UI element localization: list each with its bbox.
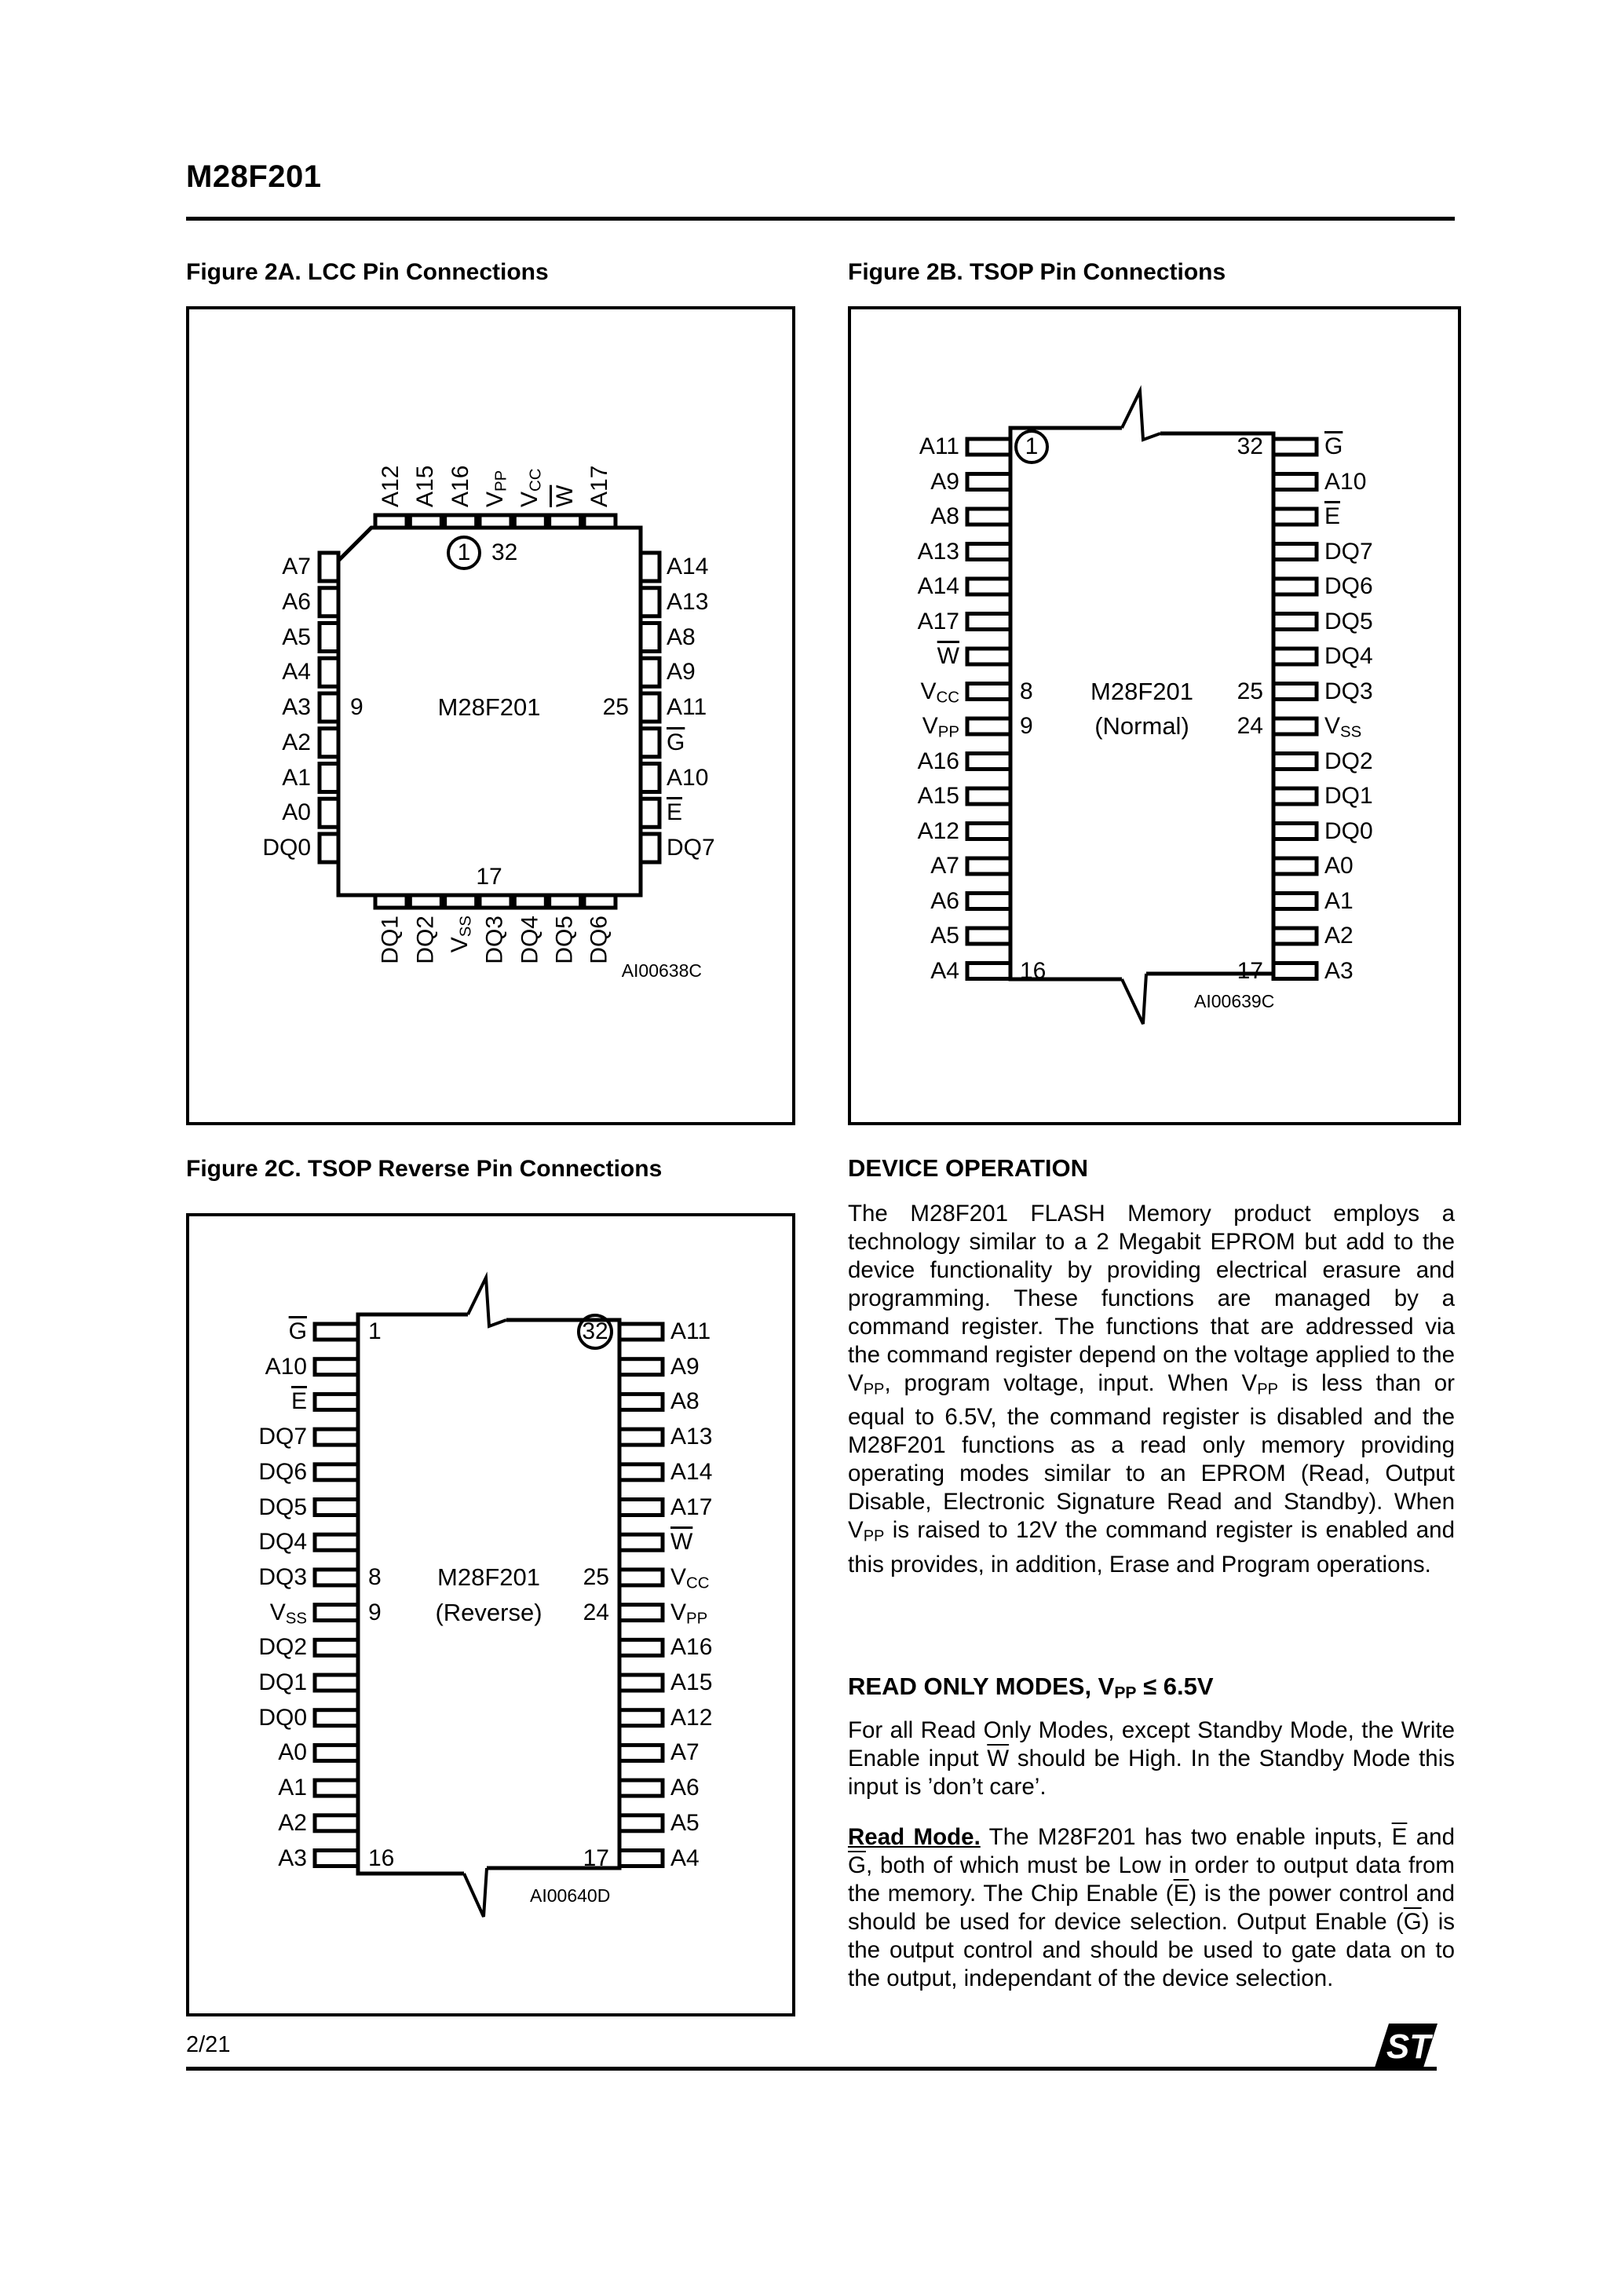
text-segment: G	[1404, 1909, 1422, 1935]
header-rule	[186, 217, 1455, 221]
pin-stub	[619, 1570, 663, 1585]
text-segment: , program voltage, input. When V	[884, 1370, 1257, 1396]
pin-label-left: DQ5	[189, 1494, 307, 1521]
pin-label-left: VPP	[851, 713, 959, 745]
pin-stub	[1273, 754, 1317, 770]
pin-label-right: DQ6	[1324, 573, 1373, 600]
pin-stub	[320, 799, 338, 827]
pin-stub	[641, 729, 659, 757]
pin-number-16: 16	[1020, 958, 1046, 985]
pin-stub	[1273, 474, 1317, 490]
pin-stub	[619, 1534, 663, 1550]
pin-stub	[641, 588, 659, 616]
pin-stub	[967, 509, 1010, 525]
pin-label-right: A14	[667, 554, 708, 580]
pin-stub	[619, 1324, 663, 1340]
pin-label-left: A9	[851, 469, 959, 495]
pin-label-right: A13	[670, 1424, 712, 1450]
pin-label-right: A2	[1324, 923, 1353, 949]
page-number: 2/21	[186, 2032, 230, 2058]
pin-label-right: DQ1	[1324, 783, 1373, 810]
page-title: M28F201	[186, 159, 321, 195]
pin-label-left: A5	[189, 624, 311, 651]
pin-stub	[315, 1640, 358, 1655]
circled-pin-number: 1	[440, 539, 488, 566]
pin-stub	[967, 788, 1010, 804]
figure-2a-box: A7A14A6A13A5A8A4A9A3A11A2GA1A10A0EDQ0DQ7…	[186, 306, 795, 1125]
pin-label-right: DQ0	[1324, 818, 1373, 845]
pin-stub	[619, 1394, 663, 1409]
pin-stub	[619, 1429, 663, 1445]
pin-stub	[641, 553, 659, 581]
text-segment: PP	[864, 1380, 885, 1398]
pin-number-17: 17	[531, 1845, 609, 1872]
pin-label-left: A13	[851, 539, 959, 565]
pin-label-right: DQ7	[667, 835, 715, 861]
text-segment: The M28F201 FLASH Memory product employs…	[848, 1201, 1455, 1396]
pin-stub	[619, 1710, 663, 1726]
pin-label-top: A12	[378, 466, 404, 507]
pin-label-left: DQ4	[189, 1529, 307, 1556]
pin-stub	[619, 1500, 663, 1515]
pin-label-bottom: DQ1	[378, 916, 404, 964]
pin-stub	[967, 963, 1010, 979]
footer-rule	[186, 2067, 1437, 2071]
pin-number-9: 9	[350, 694, 363, 721]
chip-variant: (Reverse)	[371, 1600, 607, 1626]
pin-label-left: A10	[189, 1354, 307, 1380]
pin-label-right: A11	[670, 1318, 711, 1345]
pin-label-right: A5	[670, 1810, 700, 1837]
pin-label-left: DQ0	[189, 835, 311, 861]
pin-stub	[641, 799, 659, 827]
break-symbol-bottom	[464, 1868, 487, 1917]
text-segment: E	[1392, 1824, 1408, 1850]
pin-stub	[619, 1675, 663, 1691]
pin-stub	[315, 1464, 358, 1480]
pin-number-16: 16	[368, 1845, 394, 1872]
pin-stub	[967, 439, 1010, 455]
pin-label-left: A1	[189, 1775, 307, 1801]
figure-2b-caption: Figure 2B. TSOP Pin Connections	[848, 259, 1226, 286]
pin-label-left: A11	[851, 433, 959, 460]
pin-stub	[315, 1745, 358, 1760]
pin-stub	[315, 1851, 358, 1866]
tsop-chip-outline-right	[487, 1320, 619, 1868]
pin-label-left: W	[851, 643, 959, 670]
pin-stub	[315, 1500, 358, 1515]
read-mode-paragraph: Read Mode. The M28F201 has two enable in…	[848, 1823, 1455, 1993]
pin-stub	[1273, 824, 1317, 839]
pin-label-right: A3	[1324, 958, 1353, 985]
tsop-chip-outline-left	[358, 1314, 468, 1874]
pin-label-right: VPP	[670, 1600, 707, 1632]
pin-stub	[967, 894, 1010, 909]
pin-stub	[641, 623, 659, 652]
pin-stub	[1273, 544, 1317, 560]
pin-stub	[320, 729, 338, 757]
circled-pin-number: 32	[572, 1318, 619, 1345]
pin-stub	[320, 553, 338, 581]
pin-stub	[550, 895, 581, 908]
pin-label-top: A17	[586, 466, 613, 507]
pin-label-right: A13	[667, 589, 708, 616]
pin-stub	[1273, 614, 1317, 630]
pin-label-left: DQ3	[189, 1564, 307, 1591]
pin-label-right: A11	[667, 694, 707, 721]
pin-label-left: VCC	[851, 678, 959, 711]
pin-stub	[967, 824, 1010, 839]
pin-label-right: G	[1324, 433, 1343, 460]
pin-label-left: A8	[851, 503, 959, 530]
pin-stub	[641, 834, 659, 862]
pin-label-top: VPP	[482, 470, 509, 507]
pin-stub	[619, 1851, 663, 1866]
read-only-modes-heading: READ ONLY MODES, VPP ≤ 6.5V	[848, 1673, 1214, 1703]
pin-stub	[315, 1394, 358, 1409]
pin-stub	[967, 474, 1010, 490]
pin-stub	[410, 515, 441, 528]
figure-2c-box: GA11A10A9EA8DQ7A13DQ6A14DQ5A17DQ4WDQ3VCC…	[186, 1213, 795, 2016]
pin-label-left: A7	[189, 554, 311, 580]
pin-label-right: A8	[667, 624, 696, 651]
pin-stub	[315, 1780, 358, 1796]
pin-label-left: DQ1	[189, 1669, 307, 1696]
break-symbol-bottom	[1122, 974, 1146, 1024]
pin-label-right: A1	[1324, 888, 1353, 915]
pin-label-left: A3	[189, 1845, 307, 1872]
pin-label-right: A7	[670, 1739, 700, 1766]
text-segment: W	[987, 1746, 1009, 1771]
chip-name: M28F201	[371, 1564, 607, 1591]
text-segment: is raised to 12V the command register is…	[848, 1517, 1455, 1577]
pin-label-right: A0	[1324, 853, 1353, 879]
pin-stub	[619, 1780, 663, 1796]
text-segment: PP	[864, 1528, 885, 1545]
figure-2a-caption: Figure 2A. LCC Pin Connections	[186, 259, 549, 286]
text-segment: G	[848, 1852, 866, 1878]
pin-label-right: A10	[667, 765, 708, 792]
pin-stub	[1273, 579, 1317, 594]
pin-stub	[967, 579, 1010, 594]
pin-label-left: DQ7	[189, 1424, 307, 1450]
pin-stub	[315, 1429, 358, 1445]
pin-label-left: A6	[189, 589, 311, 616]
pin-label-right: G	[667, 729, 685, 756]
pin-stub	[480, 895, 511, 908]
pin-stub	[315, 1815, 358, 1831]
text-segment: E	[1174, 1881, 1189, 1907]
pin-stub	[315, 1324, 358, 1340]
pin-stub	[315, 1359, 358, 1375]
pin-stub	[1273, 649, 1317, 664]
pin-label-right: W	[670, 1529, 692, 1556]
pin-stub	[514, 895, 546, 908]
pin-stub	[480, 515, 511, 528]
pin-label-right: E	[667, 799, 682, 826]
pin-label-right: A4	[670, 1845, 700, 1872]
pin-stub	[641, 693, 659, 722]
pin-label-right: E	[1324, 503, 1340, 530]
pin-stub	[1273, 718, 1317, 734]
device-operation-heading: DEVICE OPERATION	[848, 1154, 1088, 1183]
pin-label-left: DQ0	[189, 1705, 307, 1731]
pin-label-left: A4	[189, 659, 311, 686]
pin-stub	[619, 1359, 663, 1375]
text-segment: PP	[1257, 1380, 1278, 1398]
pin-label-right: A8	[670, 1388, 700, 1415]
pin-stub	[619, 1605, 663, 1621]
pin-stub	[315, 1675, 358, 1691]
pin-label-right: DQ4	[1324, 643, 1373, 670]
pin-label-right: A16	[670, 1634, 712, 1661]
pin-label-bottom: VSS	[448, 916, 474, 952]
pin-stub	[967, 858, 1010, 874]
pin-label-left: A6	[851, 888, 959, 915]
pin-stub	[410, 895, 441, 908]
text-segment: ≤ 6.5V	[1136, 1673, 1213, 1700]
pin-stub	[1273, 509, 1317, 525]
pin-label-right: A12	[670, 1705, 712, 1731]
chip-name: M28F201	[1025, 678, 1260, 705]
pin-number-32: 32	[491, 539, 517, 566]
pin-stub	[320, 658, 338, 686]
figure-reference-code: AI00639C	[1194, 991, 1274, 1011]
text-segment: PP	[1114, 1684, 1136, 1702]
pin-stub	[619, 1464, 663, 1480]
break-symbol-top	[1122, 391, 1160, 440]
pin-label-left: DQ6	[189, 1459, 307, 1486]
text-segment: The M28F201 has two enable inputs,	[981, 1824, 1392, 1850]
pin-label-right: A15	[670, 1669, 712, 1696]
pin-stub	[445, 515, 477, 528]
standby-paragraph: For all Read Only Modes, except Standby …	[848, 1717, 1455, 1801]
pin-stub	[315, 1534, 358, 1550]
pin-label-left: A4	[851, 958, 959, 985]
pin-stub	[1273, 788, 1317, 804]
pin-stub	[320, 834, 338, 862]
pin-label-bottom: DQ6	[586, 916, 613, 964]
break-symbol-top	[468, 1278, 506, 1326]
pin-stub	[967, 684, 1010, 700]
pin-label-left: A5	[851, 923, 959, 949]
pin-stub	[1273, 894, 1317, 909]
pin-number-1: 1	[368, 1318, 382, 1345]
pin-label-left: A2	[189, 1810, 307, 1837]
device-operation-paragraph: The M28F201 FLASH Memory product employs…	[848, 1200, 1455, 1579]
text-segment: and	[1407, 1824, 1455, 1850]
pin-label-left: E	[189, 1388, 307, 1415]
pin-label-left: G	[189, 1318, 307, 1345]
pin-label-left: A0	[189, 799, 311, 826]
figure-2c-caption: Figure 2C. TSOP Reverse Pin Connections	[186, 1156, 662, 1183]
pin-stub	[1273, 439, 1317, 455]
pin-label-top: VCC	[517, 469, 543, 507]
pin-label-left: A17	[851, 609, 959, 635]
pin-stub	[375, 515, 407, 528]
pin-stub	[320, 764, 338, 792]
pin-label-left: A3	[189, 694, 311, 721]
pin-stub	[967, 928, 1010, 944]
pin-label-bottom: DQ5	[552, 916, 579, 964]
pin-stub	[320, 588, 338, 616]
pin-label-left: A0	[189, 1739, 307, 1766]
pin-stub	[550, 515, 581, 528]
pin-stub	[967, 718, 1010, 734]
pin-label-bottom: DQ3	[482, 916, 509, 964]
pin-label-right: A9	[667, 659, 696, 686]
pin-stub	[619, 1745, 663, 1760]
pin-label-right: VSS	[1324, 713, 1361, 745]
pin-stub	[967, 614, 1010, 630]
text-segment: Read Mode.	[848, 1824, 981, 1850]
pin-stub	[315, 1710, 358, 1726]
figure-reference-code: AI00638C	[545, 960, 702, 981]
pin-stub	[514, 515, 546, 528]
pin-stub	[584, 895, 616, 908]
pin-stub	[584, 515, 616, 528]
pin-label-left: DQ2	[189, 1634, 307, 1661]
pin-number-17: 17	[1185, 958, 1263, 985]
pin-label-left: A16	[851, 748, 959, 775]
pin-stub	[320, 693, 338, 722]
pin-stub	[445, 895, 477, 908]
pin-stub	[619, 1640, 663, 1655]
pin-label-left: A7	[851, 853, 959, 879]
pin-label-right: A10	[1324, 469, 1366, 495]
pin-label-right: DQ5	[1324, 609, 1373, 635]
pin-stub	[320, 623, 338, 652]
pin-label-right: DQ2	[1324, 748, 1373, 775]
circled-pin-number: 1	[1008, 433, 1055, 460]
pin-label-right: VCC	[670, 1564, 709, 1596]
pin-stub	[641, 764, 659, 792]
figure-reference-code: AI00640D	[530, 1885, 610, 1906]
pin-label-left: A15	[851, 783, 959, 810]
pin-stub	[967, 649, 1010, 664]
pin-label-right: A17	[670, 1494, 712, 1521]
pin-stub	[1273, 928, 1317, 944]
text-segment: READ ONLY MODES, V	[848, 1673, 1114, 1700]
pin-label-left: A12	[851, 818, 959, 845]
pin-label-left: A14	[851, 573, 959, 600]
svg-text:ST: ST	[1386, 2027, 1433, 2066]
pin-label-right: DQ7	[1324, 539, 1373, 565]
pin-label-top: W	[552, 485, 579, 507]
pin-label-right: A14	[670, 1459, 712, 1486]
pin-stub	[967, 544, 1010, 560]
pin-label-right: DQ3	[1324, 678, 1373, 705]
pin-stub	[1273, 684, 1317, 700]
pin-stub	[315, 1570, 358, 1585]
chip-variant: (Normal)	[1025, 713, 1260, 740]
pin-stub	[641, 658, 659, 686]
pin-stub	[315, 1605, 358, 1621]
pin-label-top: A16	[448, 466, 474, 507]
chip-name: M28F201	[371, 694, 607, 721]
figure-2b-box: A11GA9A10A8EA13DQ7A14DQ6A17DQ5WDQ4VCCDQ3…	[848, 306, 1461, 1125]
pin-label-left: A2	[189, 729, 311, 756]
pin-stub	[1273, 963, 1317, 979]
pin-stub	[1273, 858, 1317, 874]
datasheet-page: M28F201 Figure 2A. LCC Pin Connections F…	[0, 0, 1622, 2296]
pin-number-32: 32	[1185, 433, 1263, 460]
pin-label-bottom: DQ4	[517, 916, 543, 964]
pin-stub	[375, 895, 407, 908]
pin-stub	[967, 754, 1010, 770]
pin-number-17: 17	[450, 864, 528, 890]
st-logo: ST	[1374, 2023, 1438, 2068]
pin-label-left: VSS	[189, 1600, 307, 1632]
pin-stub	[619, 1815, 663, 1831]
pin-label-bottom: DQ2	[412, 916, 439, 964]
pin-label-top: A15	[412, 466, 439, 507]
pin-label-right: A9	[670, 1354, 700, 1380]
pin-label-left: A1	[189, 765, 311, 792]
pin-label-right: A6	[670, 1775, 700, 1801]
